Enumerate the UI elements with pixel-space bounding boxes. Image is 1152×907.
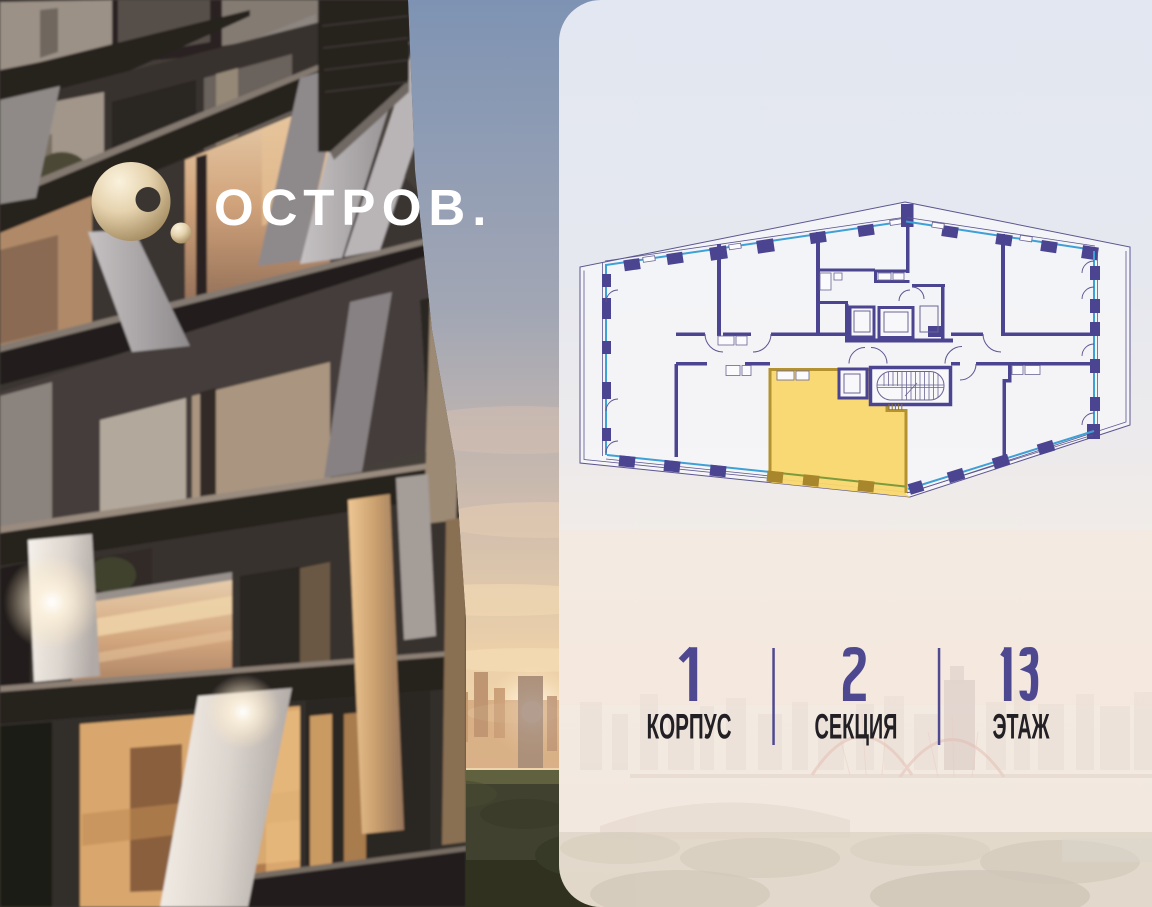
svg-text:ЭТАЖ: ЭТАЖ	[993, 708, 1050, 747]
svg-text:КОРПУС: КОРПУС	[647, 708, 732, 747]
svg-text:ОСТРОВ.: ОСТРОВ.	[214, 179, 493, 236]
svg-text:СЕКЦИЯ: СЕКЦИЯ	[815, 708, 898, 747]
